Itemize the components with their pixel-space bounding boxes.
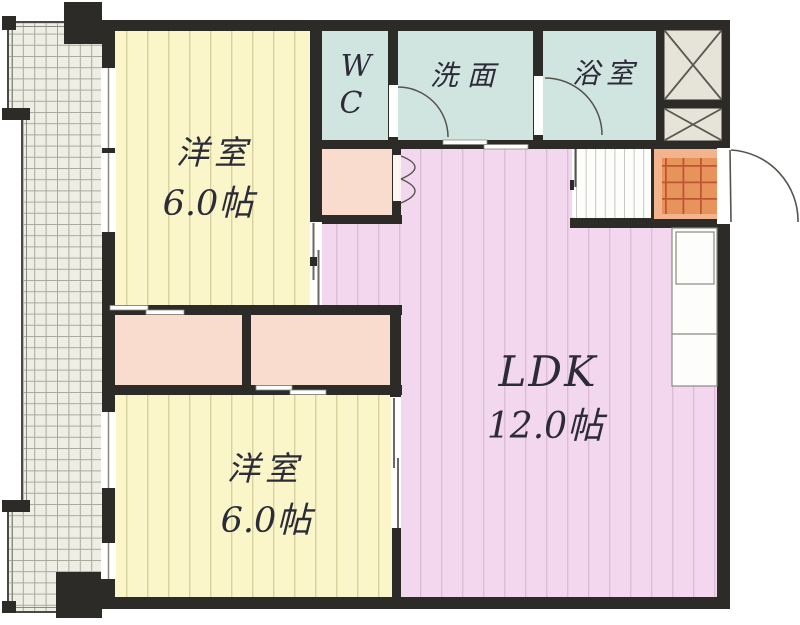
entrance-door-leaf (730, 150, 731, 222)
balcony (2, 2, 102, 618)
entrance-door-arc (731, 150, 798, 222)
wall-closet-divider (242, 314, 251, 386)
wall-closets-bottom (102, 385, 402, 395)
ldk-west-stripes (322, 221, 402, 306)
wall-top (102, 20, 730, 31)
hall-stripes (574, 149, 651, 218)
floor-plan-drawing: 洋室 6.0帖 洋室 6.0帖 LDK 12.0帖 W C 洗面 浴室 (0, 0, 800, 625)
floor-plan: 洋室 6.0帖 洋室 6.0帖 LDK 12.0帖 W C 洗面 浴室 (0, 0, 800, 625)
wall-hall-bottom (570, 218, 730, 228)
ldk-label: LDK (498, 347, 599, 396)
closet-left-area (114, 314, 242, 386)
wall-bottom (102, 597, 730, 609)
washroom-label: 洗面 (430, 59, 504, 92)
building-column-top (64, 2, 102, 44)
ldk-corridor-stripes (401, 148, 572, 219)
window-bedroombottom-1 (101, 412, 116, 488)
bedroom-top-size: 6.0帖 (163, 184, 259, 224)
bedroom-bottom-size: 6.0帖 (221, 501, 317, 541)
bedroom-top-label: 洋室 (176, 133, 252, 172)
building-column-bottom (56, 572, 102, 618)
railing-post (2, 108, 30, 120)
closet-hall-door-opening (393, 155, 401, 201)
railing-post (2, 16, 16, 30)
wall-closet-hall-bottom (310, 215, 402, 224)
hall-left-line (575, 149, 577, 187)
genkan-tile-grid (662, 158, 724, 214)
bath-door-opening (534, 76, 543, 135)
entrance-opening (717, 148, 730, 224)
railing-post (2, 601, 16, 613)
closet-right-area (251, 314, 390, 386)
kitchen-sink-unit (676, 232, 714, 284)
wall-closetright-east (390, 305, 401, 397)
wc-door-opening (389, 85, 398, 137)
window-bedroombottom-2 (101, 543, 116, 579)
window-bedroomtop-1 (101, 68, 116, 148)
closet-hall-area (321, 148, 393, 216)
wc-label-line2: C (340, 86, 363, 121)
wc-label-line1: W (341, 49, 374, 84)
ldk-size: 12.0帖 (487, 406, 608, 447)
ldk-east-stripes (672, 385, 718, 598)
bedroomtop-sliding-door (310, 222, 322, 305)
bedroom-bottom-label: 洋室 (227, 449, 303, 488)
railing-post (2, 500, 30, 512)
bedroombottom-sliding-door (391, 397, 401, 528)
window-bedroomtop-2 (101, 153, 116, 232)
bath-label: 浴室 (572, 57, 640, 90)
wall-bedroombottom-east (392, 528, 401, 607)
wall-bedroomtop-wc (310, 20, 322, 222)
balcony-grid-mid (22, 118, 102, 506)
bedroom-bottom-stripes (114, 394, 393, 598)
